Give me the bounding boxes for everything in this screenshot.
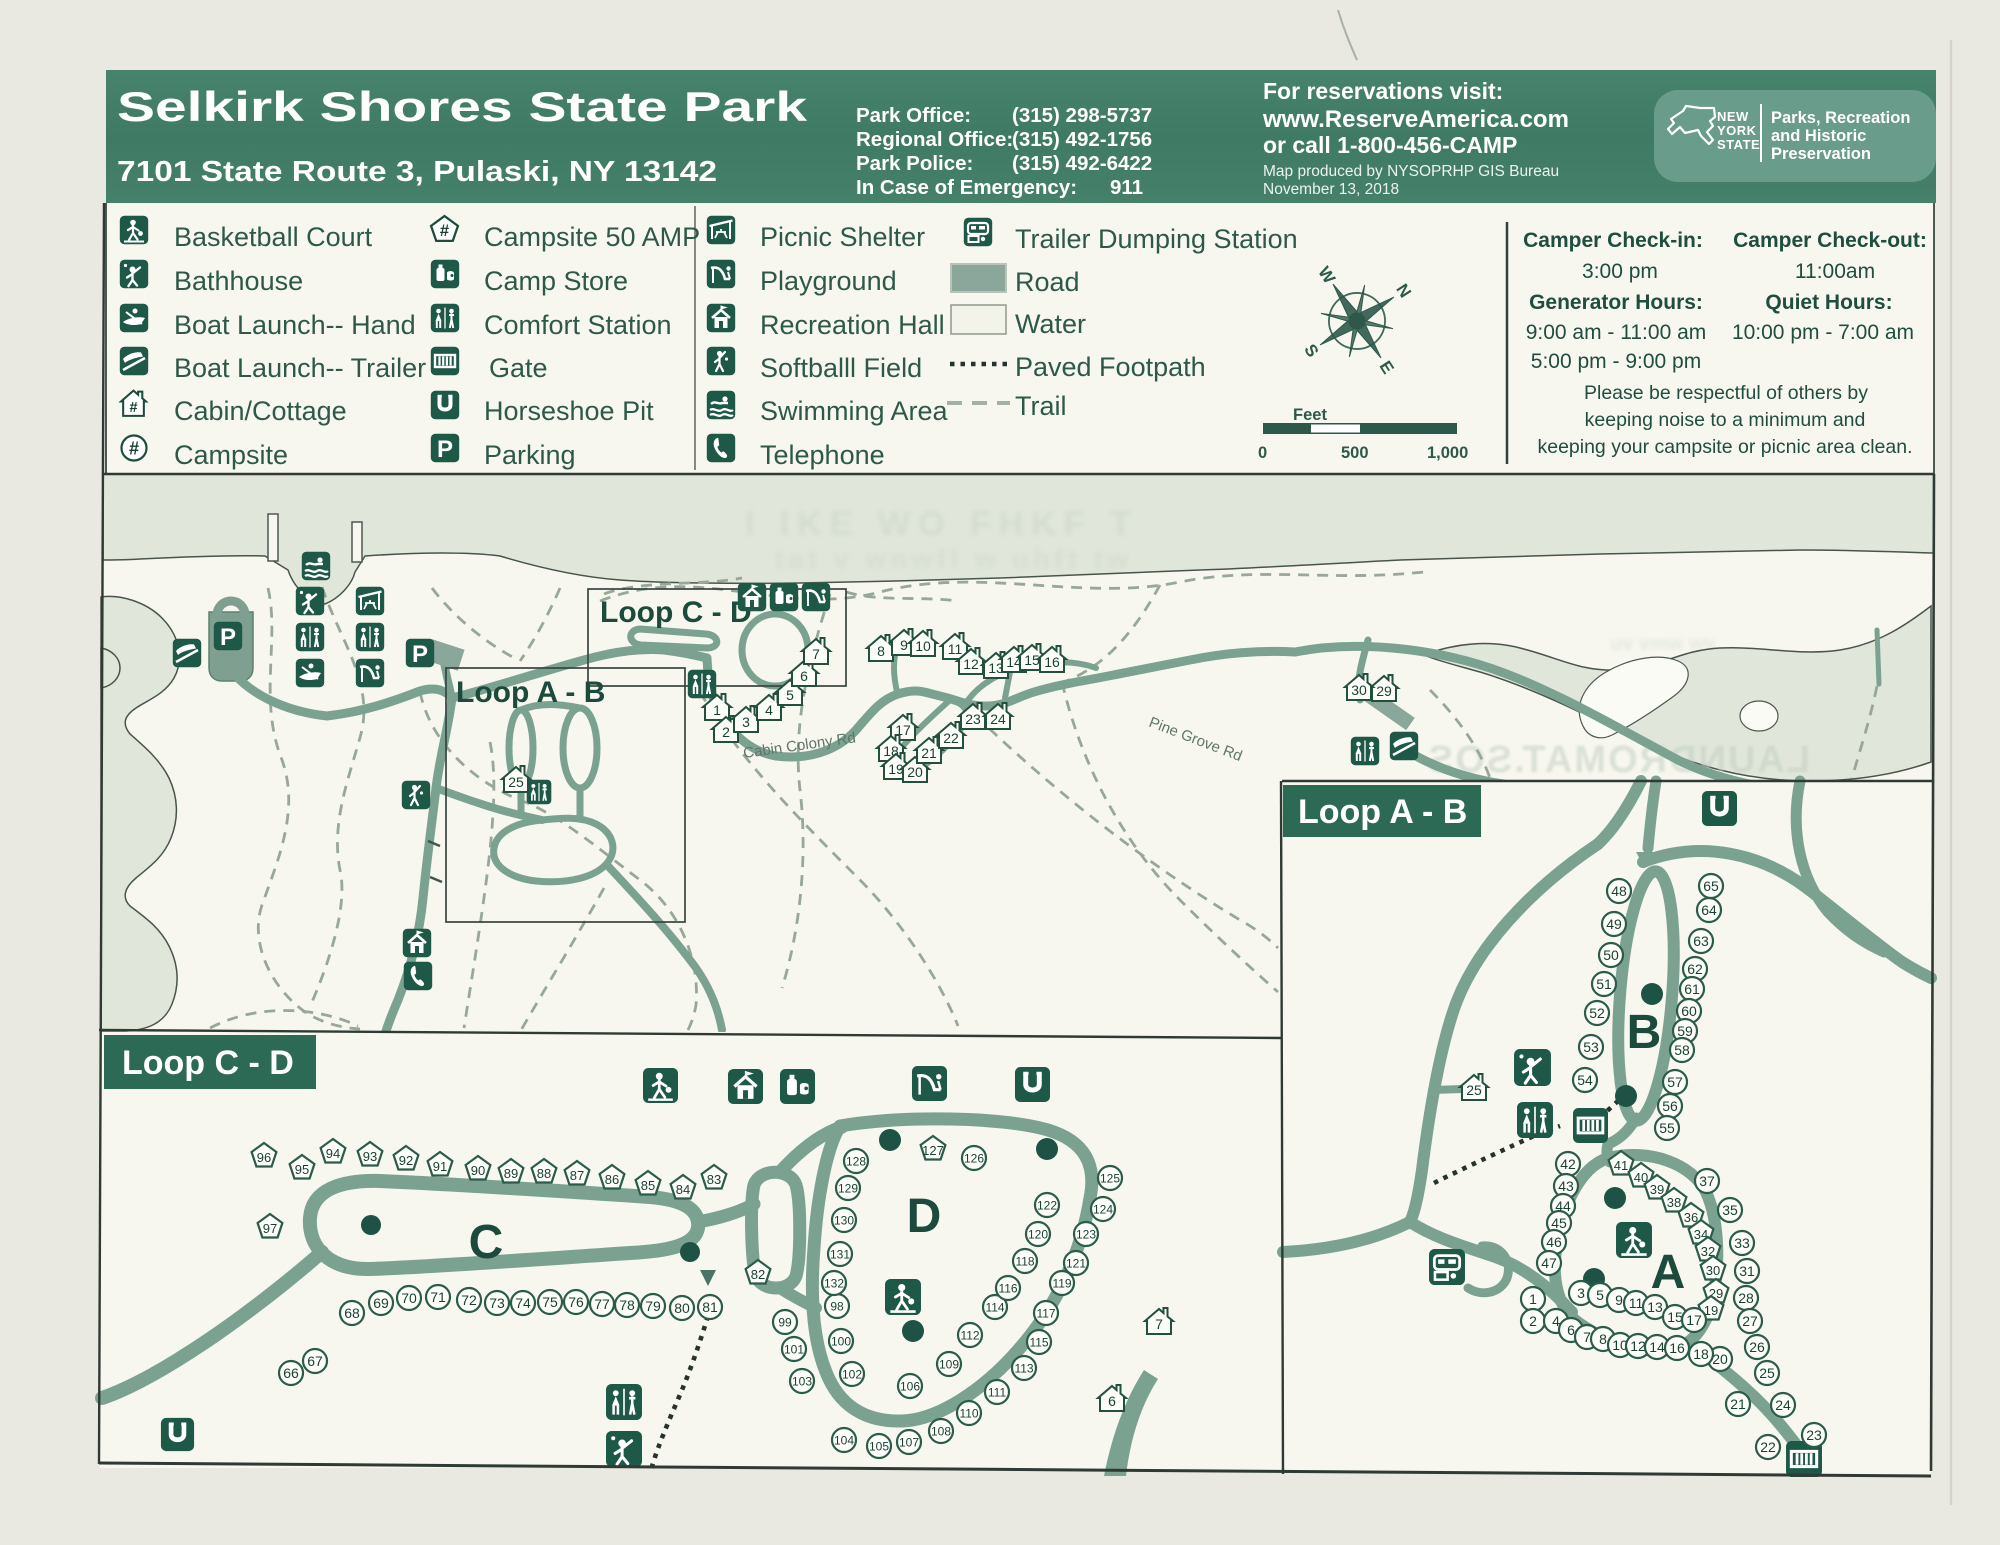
svg-text:Paved Footpath: Paved Footpath	[1015, 352, 1206, 382]
svg-text:Gate: Gate	[489, 353, 548, 383]
svg-text:123: 123	[1076, 1228, 1096, 1242]
svg-text:45: 45	[1551, 1215, 1567, 1231]
svg-text:0: 0	[1258, 444, 1267, 462]
svg-text:Trail: Trail	[1015, 391, 1067, 421]
svg-text:50: 50	[1603, 947, 1619, 963]
svg-text:www.ReserveAmerica.com: www.ReserveAmerica.com	[1262, 106, 1569, 133]
svg-text:13: 13	[1647, 1299, 1663, 1315]
svg-text:105: 105	[869, 1440, 889, 1454]
svg-text:39: 39	[1650, 1182, 1664, 1197]
svg-text:Loop C - D: Loop C - D	[600, 596, 752, 629]
svg-text:42: 42	[1560, 1156, 1576, 1172]
svg-text:6: 6	[1108, 1393, 1116, 1409]
svg-text:A: A	[1651, 1246, 1686, 1299]
svg-text:98: 98	[830, 1300, 844, 1314]
svg-text:48: 48	[1611, 883, 1627, 899]
svg-text:For reservations visit:: For reservations visit:	[1263, 78, 1503, 104]
svg-text:NEW: NEW	[1717, 109, 1749, 124]
svg-text:17: 17	[1686, 1312, 1702, 1328]
svg-text:1: 1	[1529, 1291, 1537, 1307]
svg-text:Feet: Feet	[1293, 406, 1327, 424]
svg-text:16: 16	[1044, 654, 1060, 670]
svg-text:Please be respectful of others: Please be respectful of others by	[1584, 382, 1868, 404]
svg-text:Campsite 50 AMP: Campsite 50 AMP	[484, 222, 700, 252]
svg-text:Regional Office:: Regional Office:	[856, 128, 1013, 151]
svg-text:54: 54	[1577, 1072, 1593, 1088]
svg-text:Boat Launch-- Hand: Boat Launch-- Hand	[174, 310, 416, 340]
svg-text:59: 59	[1677, 1023, 1693, 1039]
svg-text:132: 132	[824, 1277, 844, 1291]
svg-text:47: 47	[1541, 1255, 1557, 1271]
svg-text:25: 25	[1759, 1365, 1775, 1381]
svg-text:tat v wnwfl w uhft tw: tat v wnwfl w uhft tw	[775, 544, 1133, 574]
svg-text:and Historic: and Historic	[1771, 127, 1866, 145]
svg-text:119: 119	[1052, 1277, 1071, 1291]
svg-text:Picnic Shelter: Picnic Shelter	[760, 222, 925, 252]
svg-text:26: 26	[1749, 1339, 1765, 1355]
svg-text:84: 84	[676, 1182, 690, 1197]
svg-text:56: 56	[1662, 1098, 1678, 1114]
svg-text:130: 130	[834, 1214, 854, 1228]
svg-text:Parks, Recreation: Parks, Recreation	[1771, 109, 1910, 127]
svg-text:35: 35	[1722, 1202, 1738, 1218]
svg-text:93: 93	[363, 1149, 377, 1164]
svg-text:Loop C - D: Loop C - D	[122, 1044, 294, 1082]
svg-text:61: 61	[1684, 981, 1700, 997]
svg-text:77: 77	[594, 1296, 610, 1312]
svg-text:3: 3	[1577, 1285, 1585, 1301]
svg-text:52: 52	[1589, 1005, 1605, 1021]
svg-text:41: 41	[1614, 1158, 1628, 1173]
svg-text:(315) 492-6422: (315) 492-6422	[1012, 152, 1152, 175]
svg-text:87: 87	[570, 1168, 584, 1183]
svg-text:Bathhouse: Bathhouse	[174, 266, 303, 296]
svg-text:25: 25	[1466, 1082, 1482, 1098]
svg-text:38: 38	[1667, 1195, 1681, 1210]
svg-text:12: 12	[963, 656, 979, 672]
svg-text:7: 7	[1155, 1316, 1163, 1332]
svg-text:25: 25	[508, 774, 524, 790]
svg-text:21: 21	[921, 745, 937, 761]
svg-text:110: 110	[959, 1407, 978, 1421]
svg-text:82: 82	[751, 1267, 765, 1282]
svg-text:11: 11	[1629, 1295, 1644, 1311]
svg-text:LAUNDROMAT.SOS: LAUNDROMAT.SOS	[1426, 739, 1810, 781]
svg-text:7: 7	[1583, 1329, 1591, 1345]
svg-text:23: 23	[1806, 1427, 1822, 1443]
svg-text:89: 89	[504, 1166, 518, 1181]
svg-text:Horseshoe Pit: Horseshoe Pit	[484, 396, 654, 426]
svg-text:99: 99	[778, 1316, 792, 1330]
svg-text:80: 80	[674, 1300, 690, 1316]
svg-text:Camp Store: Camp Store	[484, 266, 628, 296]
svg-text:500: 500	[1341, 444, 1369, 462]
svg-text:68: 68	[344, 1305, 360, 1321]
svg-text:28: 28	[1738, 1290, 1754, 1306]
svg-text:Camper Check-in:: Camper Check-in:	[1523, 229, 1703, 252]
svg-text:104: 104	[834, 1434, 854, 1448]
svg-text:Camper Check-out:: Camper Check-out:	[1733, 229, 1927, 252]
svg-text:15: 15	[1667, 1309, 1683, 1325]
svg-text:109: 109	[939, 1358, 959, 1372]
svg-text:YORK: YORK	[1717, 123, 1757, 138]
svg-text:111: 111	[988, 1386, 1007, 1400]
svg-text:11: 11	[948, 641, 963, 657]
svg-text:18: 18	[1693, 1346, 1709, 1362]
svg-text:57: 57	[1667, 1074, 1683, 1090]
svg-text:96: 96	[257, 1150, 271, 1165]
svg-text:112: 112	[960, 1329, 979, 1343]
svg-text:Park Office:: Park Office:	[856, 104, 971, 127]
svg-text:Preservation: Preservation	[1771, 145, 1871, 163]
svg-text:124: 124	[1093, 1203, 1113, 1217]
svg-text:10:00 pm - 7:00 am: 10:00 pm - 7:00 am	[1732, 321, 1914, 344]
svg-text:C: C	[469, 1216, 504, 1269]
svg-text:20: 20	[1712, 1351, 1728, 1367]
svg-text:129: 129	[838, 1182, 858, 1196]
svg-text:23: 23	[965, 711, 981, 727]
svg-text:D: D	[907, 1190, 942, 1243]
svg-text:22: 22	[1760, 1439, 1776, 1455]
svg-text:85: 85	[641, 1178, 655, 1193]
svg-text:10: 10	[915, 638, 931, 654]
svg-text:97: 97	[263, 1221, 277, 1236]
svg-text:Comfort Station: Comfort Station	[484, 310, 672, 340]
svg-text:73: 73	[489, 1295, 505, 1311]
svg-text:75: 75	[542, 1294, 558, 1310]
svg-text:86: 86	[605, 1172, 619, 1187]
svg-text:115: 115	[1029, 1336, 1048, 1350]
svg-text:60: 60	[1681, 1003, 1697, 1019]
svg-text:5: 5	[1596, 1287, 1604, 1303]
svg-text:911: 911	[1110, 176, 1143, 199]
svg-text:43: 43	[1558, 1178, 1574, 1194]
svg-text:92: 92	[399, 1153, 413, 1168]
svg-text:In Case of Emergency:: In Case of Emergency:	[856, 176, 1077, 199]
svg-text:131: 131	[830, 1248, 850, 1262]
svg-text:Parking: Parking	[484, 440, 576, 470]
svg-text:24: 24	[1775, 1397, 1791, 1413]
svg-text:81: 81	[702, 1299, 718, 1315]
svg-text:15: 15	[1024, 652, 1040, 668]
svg-text:20: 20	[907, 764, 923, 780]
svg-text:91: 91	[433, 1159, 447, 1174]
svg-text:Loop A - B: Loop A - B	[1298, 793, 1467, 831]
svg-text:90: 90	[471, 1163, 485, 1178]
svg-text:keeping your campsite or picni: keeping your campsite or picnic area cle…	[1537, 436, 1912, 458]
svg-text:Trailer Dumping Station: Trailer Dumping Station	[1015, 224, 1298, 254]
svg-text:122: 122	[1037, 1199, 1057, 1213]
svg-text:121: 121	[1066, 1257, 1086, 1271]
svg-text:27: 27	[1742, 1313, 1758, 1329]
svg-text:B: B	[1627, 1006, 1662, 1059]
svg-text:113: 113	[1014, 1362, 1033, 1376]
svg-text:95: 95	[295, 1162, 309, 1177]
svg-text:79: 79	[645, 1298, 661, 1314]
svg-text:71: 71	[430, 1289, 446, 1305]
svg-text:1,000: 1,000	[1427, 444, 1468, 462]
svg-text:2: 2	[1529, 1313, 1537, 1329]
svg-text:6: 6	[1567, 1322, 1575, 1338]
svg-text:16: 16	[1669, 1340, 1685, 1356]
svg-text:62: 62	[1687, 961, 1703, 977]
svg-text:November 13, 2018: November 13, 2018	[1263, 181, 1399, 198]
svg-text:58: 58	[1674, 1042, 1690, 1058]
svg-text:114: 114	[985, 1301, 1004, 1315]
svg-text:49: 49	[1606, 916, 1622, 932]
svg-text:101: 101	[784, 1343, 804, 1357]
svg-text:126: 126	[964, 1152, 984, 1166]
svg-text:9: 9	[900, 637, 908, 653]
svg-text:Boat Launch-- Trailer: Boat Launch-- Trailer	[174, 353, 426, 383]
svg-text:11:00am: 11:00am	[1795, 260, 1875, 283]
svg-text:3:00 pm: 3:00 pm	[1582, 260, 1658, 283]
svg-text:108: 108	[931, 1425, 951, 1439]
svg-text:116: 116	[998, 1282, 1017, 1296]
svg-text:66: 66	[283, 1365, 299, 1381]
svg-text:102: 102	[842, 1368, 862, 1382]
svg-text:37: 37	[1699, 1173, 1715, 1189]
svg-text:Loop A - B: Loop A - B	[456, 676, 605, 709]
svg-text:125: 125	[1100, 1172, 1120, 1186]
svg-text:30: 30	[1706, 1263, 1720, 1278]
svg-text:Water: Water	[1015, 309, 1086, 339]
svg-text:5:00 pm - 9:00 pm: 5:00 pm - 9:00 pm	[1531, 350, 1701, 373]
svg-text:8: 8	[1599, 1331, 1607, 1347]
svg-text:STATE: STATE	[1717, 137, 1760, 152]
svg-text:Park Police:: Park Police:	[856, 152, 973, 175]
svg-text:107: 107	[899, 1436, 919, 1450]
svg-text:21: 21	[1730, 1396, 1746, 1412]
svg-text:4: 4	[765, 702, 773, 718]
svg-text:63: 63	[1693, 933, 1709, 949]
svg-text:24: 24	[990, 711, 1006, 727]
svg-text:120: 120	[1028, 1228, 1048, 1242]
svg-text:94: 94	[326, 1146, 340, 1161]
svg-text:72: 72	[461, 1292, 477, 1308]
svg-text:74: 74	[515, 1295, 531, 1311]
svg-text:117: 117	[1036, 1307, 1055, 1321]
svg-text:53: 53	[1583, 1039, 1599, 1055]
svg-text:78: 78	[619, 1297, 635, 1313]
svg-text:Campsite: Campsite	[174, 440, 288, 470]
svg-text:83: 83	[707, 1172, 721, 1187]
svg-text:65: 65	[1703, 878, 1719, 894]
svg-text:Swimming Area: Swimming Area	[760, 396, 949, 426]
svg-text:9: 9	[1615, 1292, 1623, 1308]
svg-text:14: 14	[1649, 1339, 1665, 1355]
svg-text:keeping noise to a minimum and: keeping noise to a minimum and	[1585, 409, 1866, 431]
svg-text:Telephone: Telephone	[760, 440, 885, 470]
svg-text:3: 3	[742, 714, 750, 730]
svg-text:55: 55	[1659, 1120, 1675, 1136]
svg-text:33: 33	[1734, 1235, 1750, 1251]
svg-text:31: 31	[1739, 1263, 1755, 1279]
svg-text:5: 5	[786, 687, 794, 703]
svg-text:7: 7	[812, 646, 820, 662]
svg-text:106: 106	[900, 1380, 920, 1394]
svg-text:I IKE WO FHKF T: I IKE WO FHKF T	[745, 505, 1139, 543]
svg-text:Selkirk Shores State Park: Selkirk Shores State Park	[117, 83, 808, 130]
svg-text:8: 8	[877, 643, 885, 659]
svg-text:9:00 am - 11:00 am: 9:00 am - 11:00 am	[1526, 321, 1707, 344]
svg-text:(315) 492-1756: (315) 492-1756	[1012, 128, 1152, 151]
svg-text:Recreation Hall: Recreation Hall	[760, 310, 945, 340]
svg-text:103: 103	[792, 1375, 812, 1389]
svg-text:12: 12	[1630, 1338, 1646, 1354]
svg-text:69: 69	[373, 1295, 389, 1311]
svg-text:70: 70	[401, 1290, 417, 1306]
svg-text:29: 29	[1376, 683, 1392, 699]
svg-text:Softballl Field: Softballl Field	[760, 353, 922, 383]
svg-text:30: 30	[1351, 682, 1367, 698]
svg-text:100: 100	[831, 1335, 851, 1349]
svg-text:1: 1	[713, 702, 721, 718]
svg-text:67: 67	[307, 1353, 323, 1369]
svg-text:118: 118	[1015, 1255, 1034, 1269]
svg-text:22: 22	[943, 730, 959, 746]
svg-text:2: 2	[722, 724, 730, 740]
svg-text:76: 76	[568, 1294, 584, 1310]
svg-text:46: 46	[1546, 1234, 1562, 1250]
svg-text:or call 1-800-456-CAMP: or call 1-800-456-CAMP	[1263, 132, 1517, 158]
svg-text:Quiet Hours:: Quiet Hours:	[1765, 291, 1892, 314]
svg-text:Cabin/Cottage: Cabin/Cottage	[174, 396, 347, 426]
svg-text:6: 6	[800, 668, 808, 684]
svg-text:Playground: Playground	[760, 266, 897, 296]
svg-text:128: 128	[846, 1155, 866, 1169]
svg-text:Road: Road	[1015, 267, 1080, 297]
svg-text:Basketball Court: Basketball Court	[174, 222, 373, 252]
svg-text:7101 State Route 3, Pulaski, N: 7101 State Route 3, Pulaski, NY 13142	[117, 156, 717, 188]
svg-text:51: 51	[1596, 976, 1612, 992]
svg-text:64: 64	[1701, 902, 1717, 918]
svg-text:88: 88	[537, 1166, 551, 1181]
svg-text:(315) 298-5737: (315) 298-5737	[1012, 104, 1152, 127]
svg-text:Generator Hours:: Generator Hours:	[1529, 291, 1703, 314]
svg-text:127: 127	[922, 1143, 944, 1158]
svg-text:Map produced by NYSOPRHP GIS B: Map produced by NYSOPRHP GIS Bureau	[1263, 163, 1559, 180]
